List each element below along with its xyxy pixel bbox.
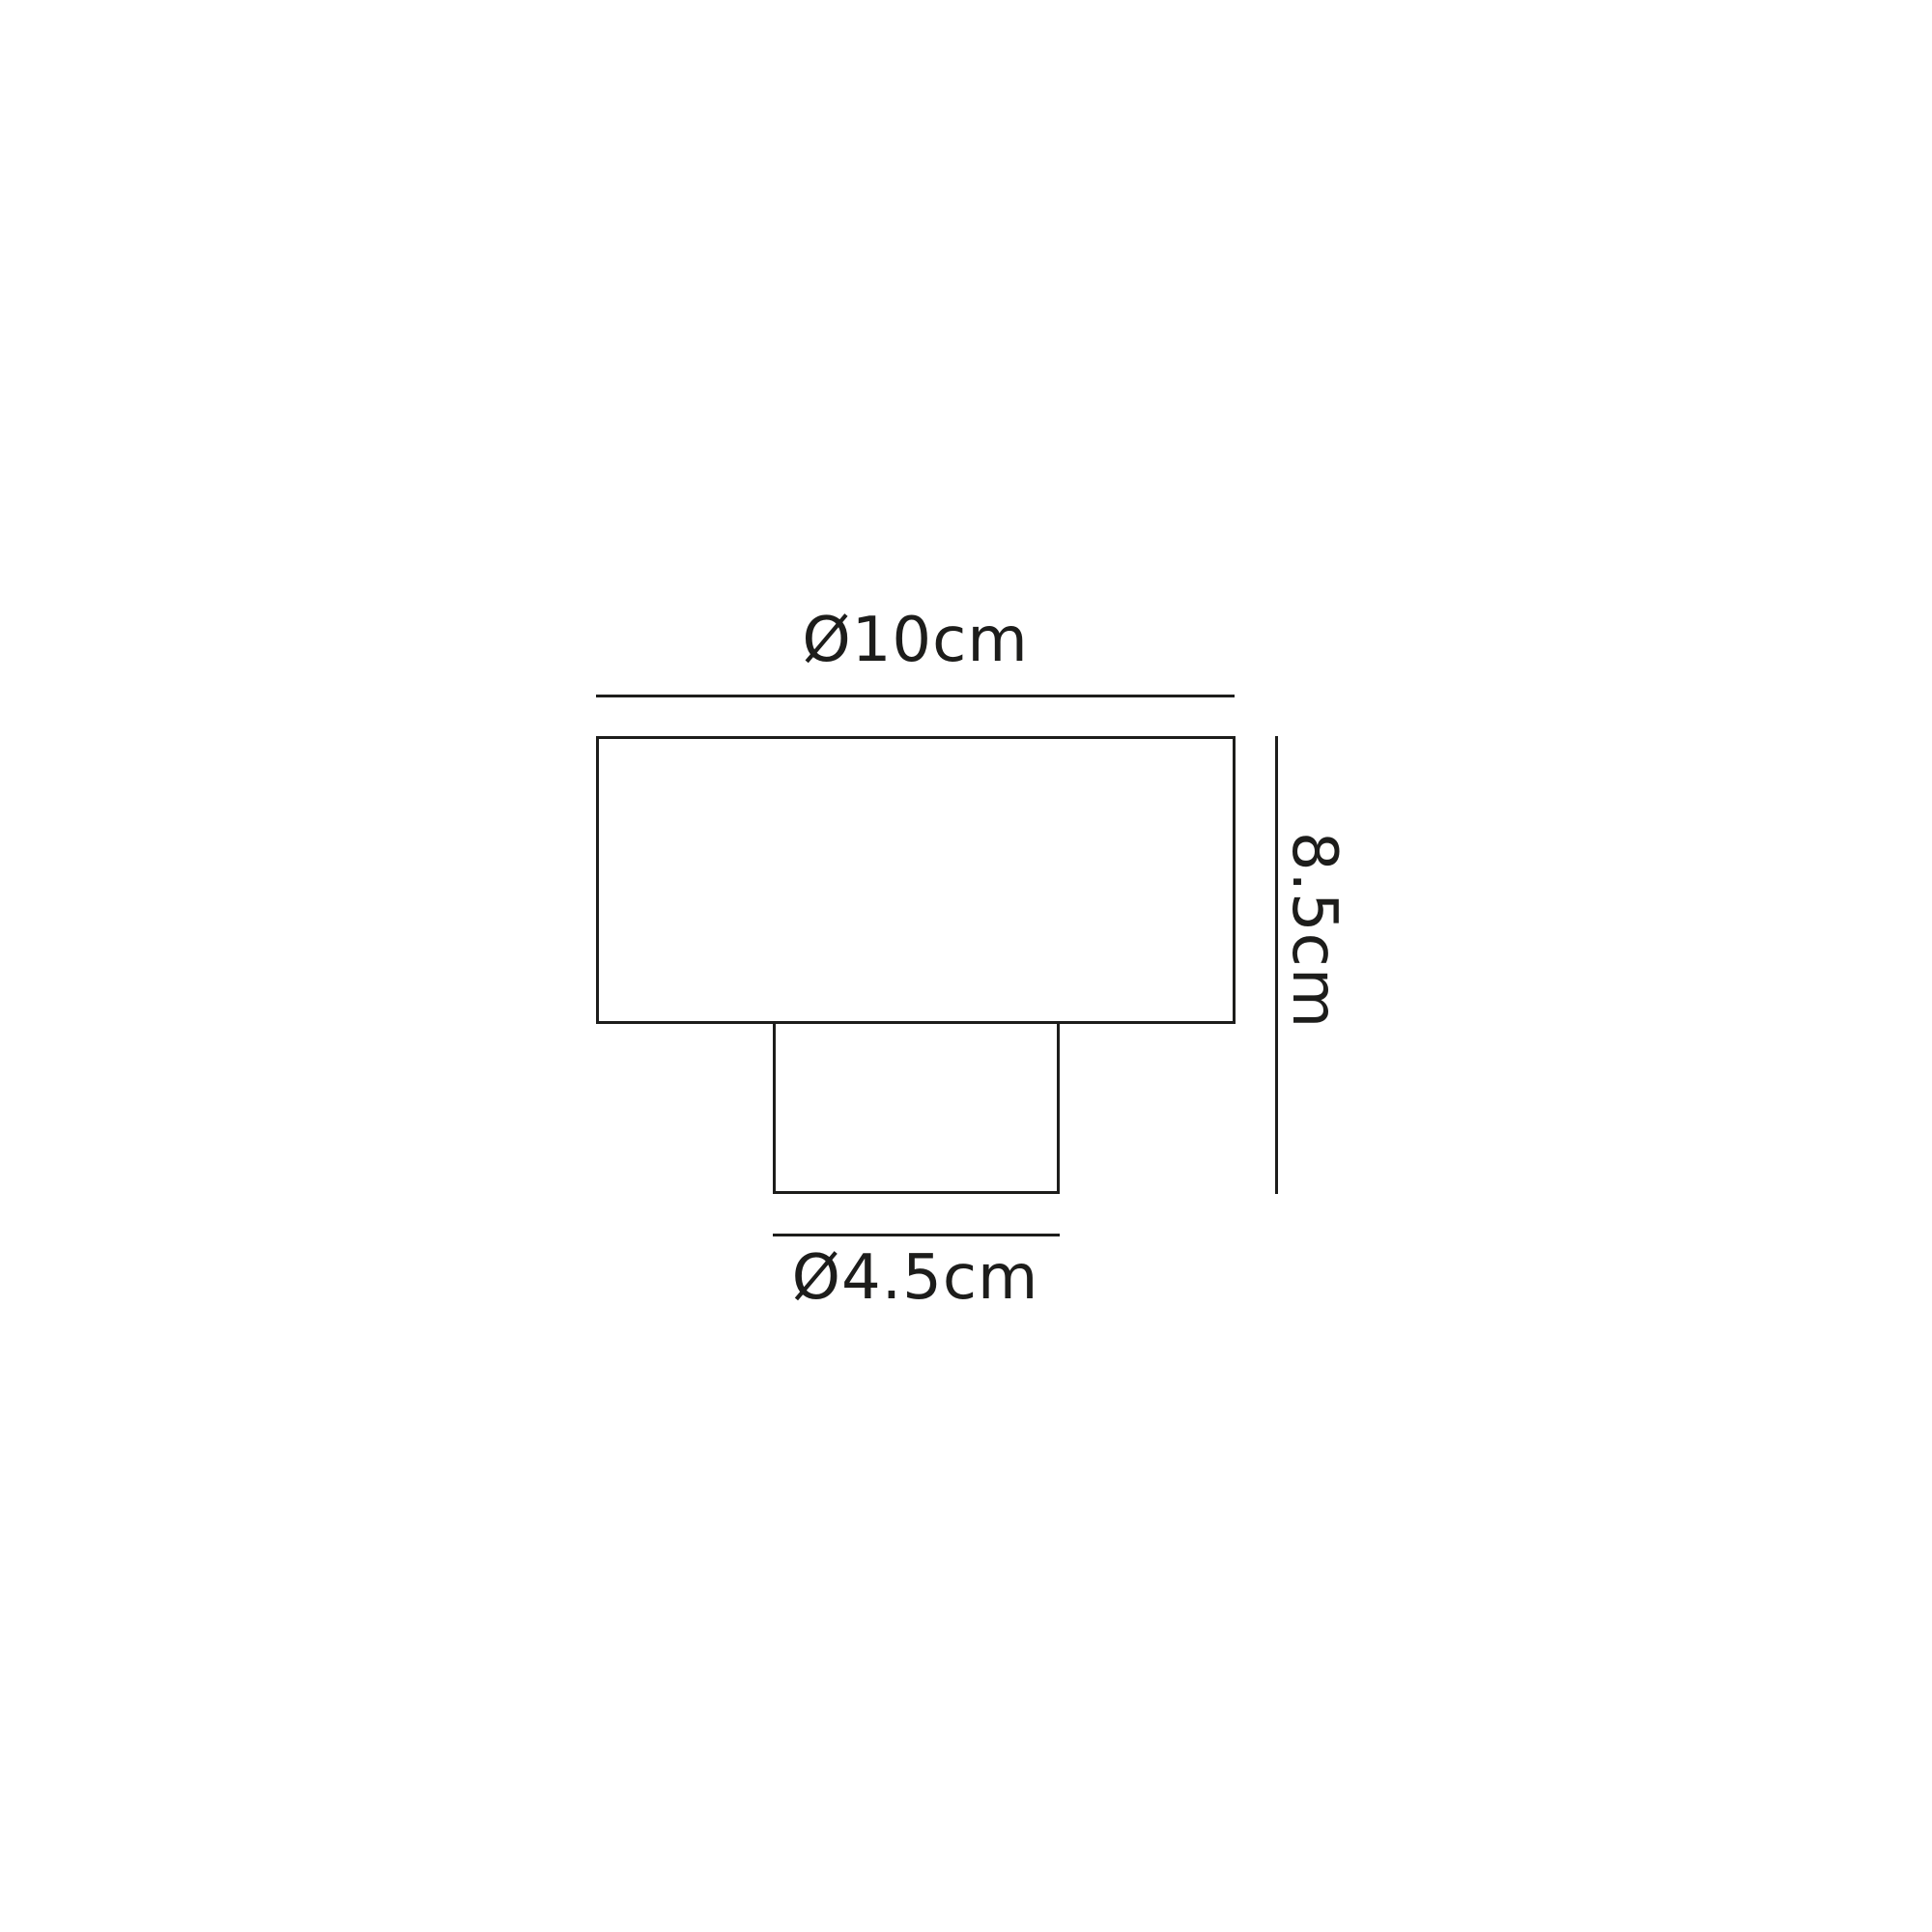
top-diameter-dimension-line xyxy=(596,695,1235,697)
height-label: 8.5cm xyxy=(1280,832,1348,1029)
base-outline xyxy=(773,1024,1060,1194)
dimension-diagram: Ø10cm 8.5cm Ø4.5cm xyxy=(0,0,1932,1932)
base-diameter-dimension-line xyxy=(773,1234,1060,1236)
top-diameter-label: Ø10cm xyxy=(596,607,1235,674)
shade-outline xyxy=(596,736,1236,1024)
base-diameter-label: Ø4.5cm xyxy=(741,1244,1090,1312)
